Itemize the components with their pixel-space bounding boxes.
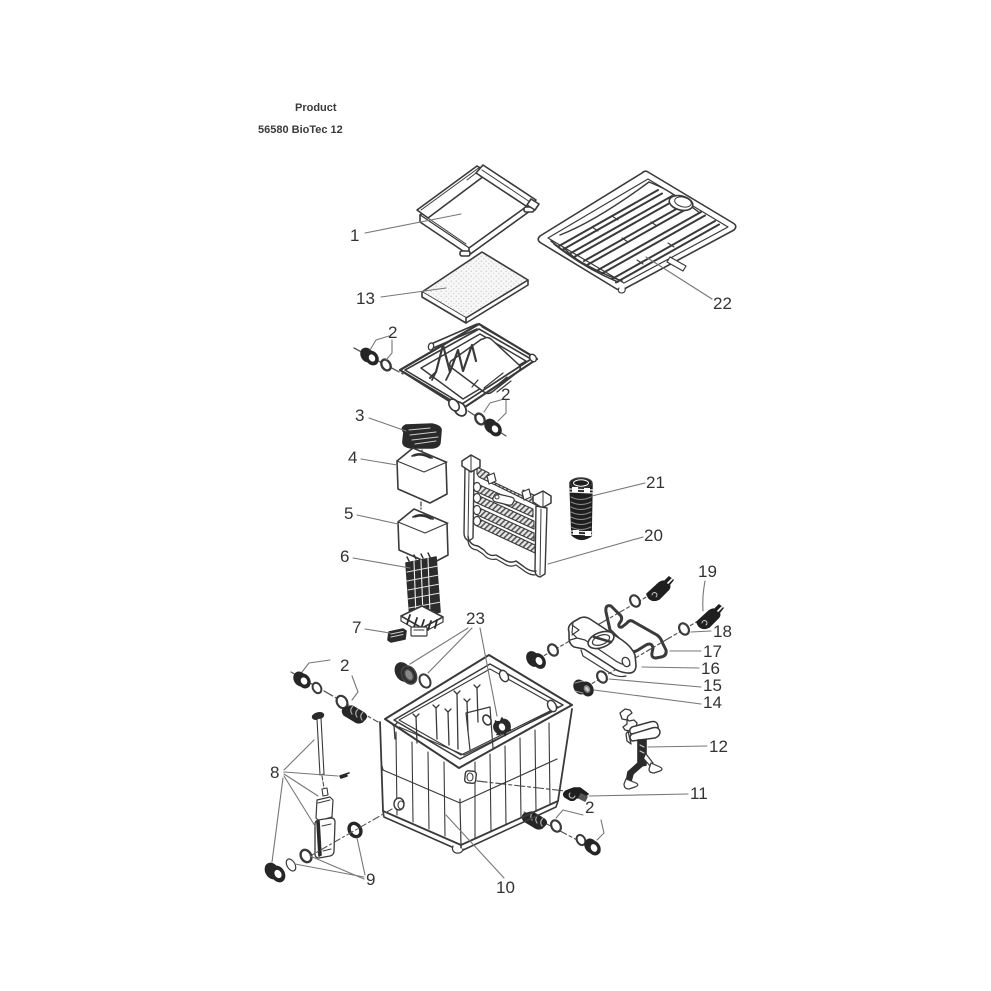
svg-text:9: 9 [366,870,375,889]
svg-text:2: 2 [388,323,397,342]
svg-text:18: 18 [713,622,732,641]
svg-text:2: 2 [340,656,349,675]
svg-text:20: 20 [644,526,663,545]
svg-text:13: 13 [356,289,375,308]
svg-text:2: 2 [501,385,510,404]
svg-text:5: 5 [344,504,353,523]
svg-text:21: 21 [646,473,665,492]
svg-text:23: 23 [466,609,485,628]
svg-text:14: 14 [703,693,722,712]
svg-text:12: 12 [709,737,728,756]
svg-text:10: 10 [496,878,515,897]
svg-text:6: 6 [340,547,349,566]
svg-text:8: 8 [270,763,279,782]
svg-text:3: 3 [355,406,364,425]
svg-text:1: 1 [350,226,359,245]
svg-text:11: 11 [690,784,708,803]
svg-text:Product: Product [295,102,337,114]
svg-text:56580 BioTec 12: 56580 BioTec 12 [258,124,343,136]
svg-text:7: 7 [352,618,361,637]
svg-text:2: 2 [585,798,594,817]
svg-text:19: 19 [698,562,717,581]
svg-text:22: 22 [713,294,732,313]
svg-text:4: 4 [348,448,357,467]
